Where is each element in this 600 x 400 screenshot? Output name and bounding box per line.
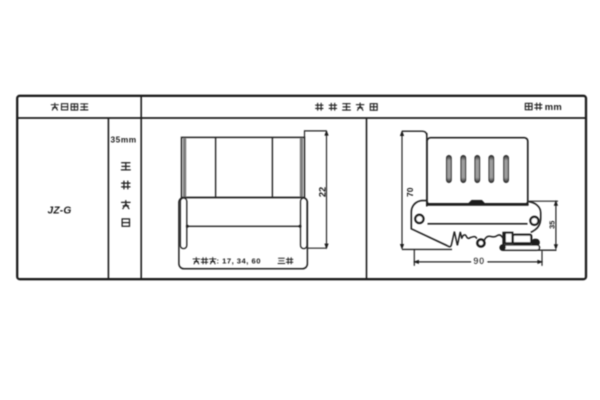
svg-text:JZ-G: JZ-G bbox=[48, 206, 72, 217]
svg-text:35mm: 35mm bbox=[111, 134, 137, 144]
svg-text:70: 70 bbox=[405, 187, 415, 197]
svg-text:90: 90 bbox=[473, 256, 485, 267]
svg-text:mm: mm bbox=[545, 101, 562, 112]
svg-text:35: 35 bbox=[548, 221, 557, 229]
svg-text:22: 22 bbox=[318, 187, 328, 197]
svg-text:: 17, 34, 60: : 17, 34, 60 bbox=[217, 257, 261, 266]
